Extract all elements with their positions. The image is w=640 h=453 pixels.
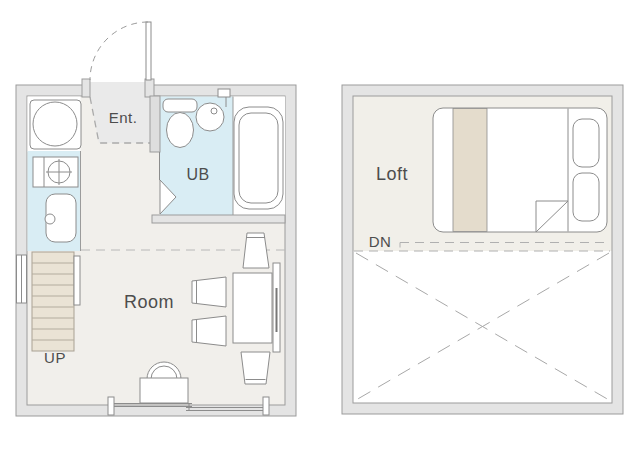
loft-label: Loft [376,165,408,183]
floorplan-canvas: Ent. UB Room UP Loft DN [0,0,640,453]
chair-left-2 [192,316,226,346]
window-cap-left [108,397,114,415]
floorplan-drawing [0,0,640,453]
toilet-tank [163,99,197,112]
bed-runner [453,109,487,232]
staircase [32,252,80,351]
bathtub [234,107,283,209]
bathtub-outer [234,107,283,209]
side-window [17,255,27,303]
floor2-plan [342,85,623,414]
stairs-body [32,252,74,351]
unit-bath-label: UB [186,167,209,183]
entrance-door-swing-arc [90,22,148,80]
basin-faucet-hole [211,108,217,114]
door-jamb-left [82,79,90,97]
stairs-handrail [74,256,80,305]
sink-drain [45,214,55,224]
stairs-dn-label: DN [369,234,392,249]
stairs-up-label: UP [44,350,66,365]
desk [140,378,188,403]
window-cap-right [263,397,269,415]
basin-faucet [218,89,230,97]
washing-machine-body [30,100,81,149]
room-label: Room [124,293,174,311]
kitchen-sink [45,194,76,242]
double-bed [433,108,607,232]
wall-board [273,263,280,352]
dining-table [233,273,272,343]
entrance-label: Ent. [109,110,138,125]
pillow-top [573,119,599,167]
chair-top [243,233,269,268]
ub-partition-wall [150,96,160,152]
entrance-door-leaf [146,22,151,80]
basin-bowl [196,103,224,131]
ub-bottom-wall [152,215,285,223]
stove-burner [33,157,78,187]
washing-machine [30,100,81,149]
pillow-bottom [573,173,599,221]
door-jamb-right [145,79,154,97]
chair-left-1 [192,277,226,307]
toilet-bowl [167,113,194,148]
entrance-door [90,22,151,80]
